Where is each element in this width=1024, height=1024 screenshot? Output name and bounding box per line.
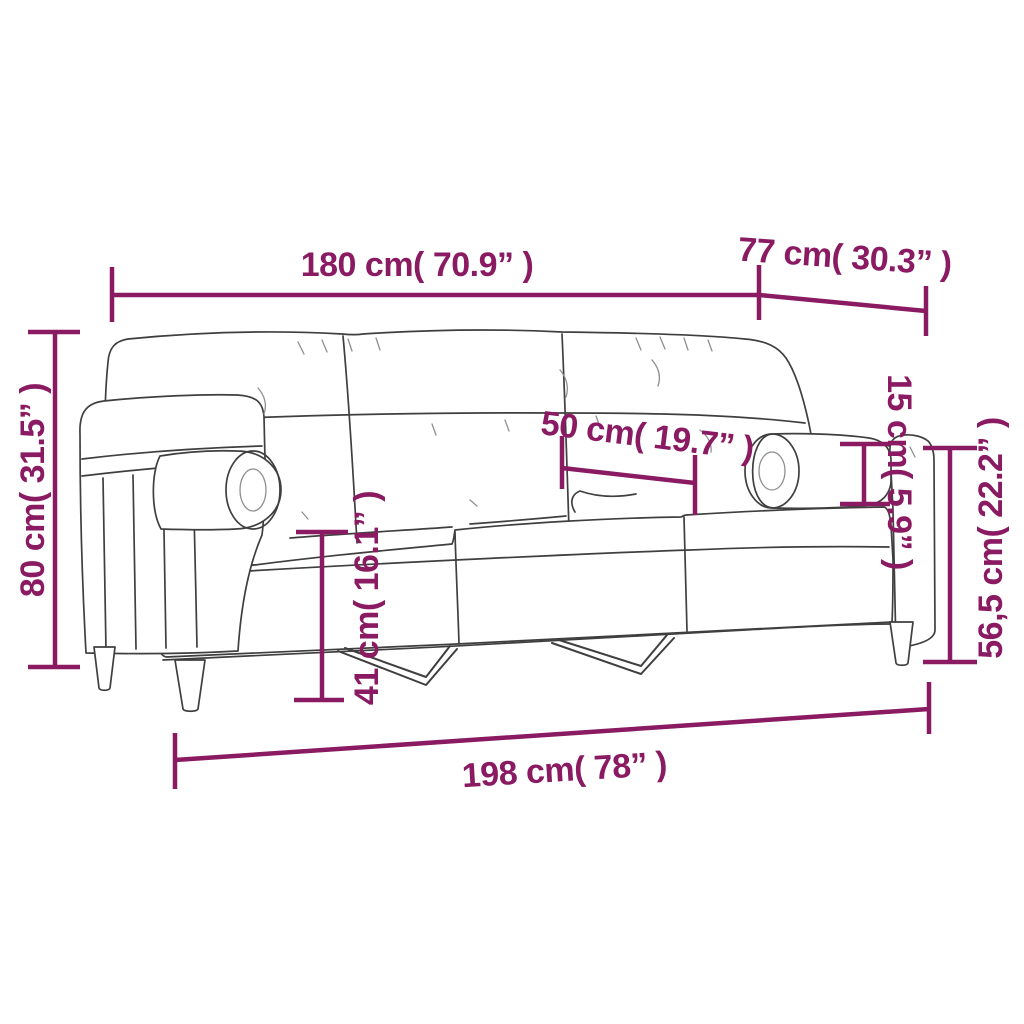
sofa-illustration xyxy=(80,330,935,711)
dimension-label: 77 cm( 30.3” ) xyxy=(737,231,953,284)
product-dimension-diagram: 180 cm( 70.9” ) 77 cm( 30.3” ) 80 cm( 31… xyxy=(0,0,1024,1024)
dimension-armrest-height: 56,5 cm( 22.2” ) xyxy=(923,417,1010,662)
dimension-depth: 77 cm( 30.3” ) xyxy=(737,231,953,336)
left-bolster-pillow xyxy=(153,451,281,530)
leg-wood-right xyxy=(890,622,913,665)
diagram-canvas: 180 cm( 70.9” ) 77 cm( 30.3” ) 80 cm( 31… xyxy=(0,0,1024,1024)
dimension-back-width: 180 cm( 70.9” ) xyxy=(112,246,759,322)
leg-metal-sled-right xyxy=(552,635,674,674)
dimension-label: 56,5 cm( 22.2” ) xyxy=(972,417,1010,658)
dimension-label: 80 cm( 31.5” ) xyxy=(14,383,52,597)
leg-wood-left-front xyxy=(175,660,205,711)
dimension-label: 15 cm( 5.9” ) xyxy=(880,374,918,570)
dimension-line xyxy=(759,286,926,336)
dimension-label: 180 cm( 70.9” ) xyxy=(301,246,534,284)
dimension-label: 41 cm( 16.1” ) xyxy=(348,491,386,705)
dimension-label: 198 cm( 78” ) xyxy=(461,745,668,795)
dimension-total-width: 198 cm( 78” ) xyxy=(175,682,929,795)
leg-wood-left-rear xyxy=(94,647,115,690)
dimension-height: 80 cm( 31.5” ) xyxy=(14,332,80,667)
